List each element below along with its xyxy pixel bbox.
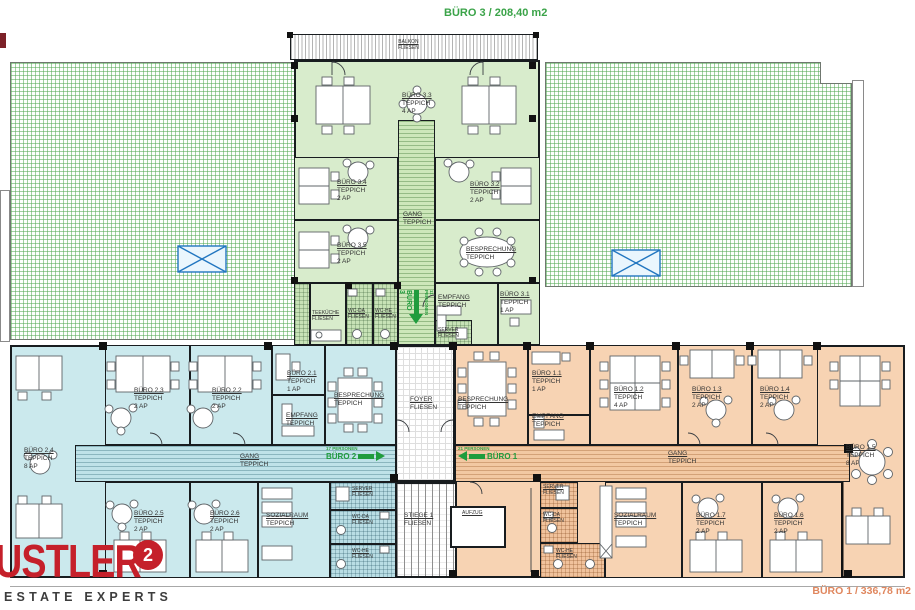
- room-label-buero-1-3: BÜRO 1.3TEPPICH2 AP: [692, 386, 722, 410]
- room-label-besprechung-3: BESPRECHUNGTEPPICH: [466, 246, 516, 262]
- room-label-buero-3-5: BÜRO 3.5TEPPICH2 AP: [337, 242, 367, 266]
- room-label-wc-da-3: WC-DAFLIESEN: [348, 308, 369, 321]
- arrow-left-icon: [458, 451, 467, 461]
- room-label-aufzug: AUFZUG: [462, 510, 483, 516]
- room-label-wc-he-2: WC-HEFLIESEN: [352, 548, 373, 561]
- room-label-buero-2-6: BÜRO 2.6TEPPICH2 AP: [210, 510, 240, 534]
- room-label-buero-2-4: BÜRO 2.4TEPPICH8 AP: [24, 447, 54, 471]
- room-label-besprechung-1: BESPRECHUNGTEPPICH: [458, 396, 508, 412]
- entrance-buero-1-label: BÜRO 1: [487, 452, 517, 461]
- room-label-buero-2-1: BÜRO 2.1TEPPICH1 AP: [287, 370, 317, 394]
- room-label-gang-2: GANGTEPPICH: [240, 453, 268, 469]
- logo-superscript-badge: 2: [133, 540, 163, 570]
- room-label-buero-3-2: BÜRO 3.2TEPPICH2 AP: [470, 181, 500, 205]
- room-label-buero-1-2: BÜRO 1.2TEPPICH4 AP: [614, 386, 644, 410]
- room-label-server-1: SERVERFLIESEN: [543, 484, 564, 497]
- floor-plan: BÜRO 3 / 208,40 m2 BÜRO 1 / 336,78 m2: [0, 0, 915, 610]
- logo-tagline: ESTATE EXPERTS: [4, 590, 172, 604]
- room-label-wc-he-1: WC-HEFLIESEN: [556, 548, 577, 561]
- room-label-gang-1: GANGTEPPICH: [668, 450, 696, 466]
- room-label-empfang-3: EMPFANGTEPPICH: [438, 294, 470, 310]
- room-label-foyer: FOYERFLIESEN: [410, 396, 437, 412]
- room-label-buero-2-3: BÜRO 2.3TEPPICH2 AP: [134, 387, 164, 411]
- arrow-right-icon: [376, 451, 385, 461]
- logo-wordmark: USTLER: [0, 538, 141, 584]
- entrance-buero-2-label: BÜRO 2: [326, 452, 356, 461]
- room-label-buero-1-4: BÜRO 1.4TEPPICH2 AP: [760, 386, 790, 410]
- room-label-empfang-1: EMPFANGTEPPICH: [532, 413, 564, 429]
- unit-1-title: BÜRO 1 / 336,78 m2: [812, 585, 911, 597]
- arrow-bar: [469, 454, 485, 459]
- room-label-buero-1-6: BÜRO 1.6TEPPICH2 AP: [774, 512, 804, 536]
- room-label-wc-da-1: WC-DAFLIESEN: [543, 512, 564, 525]
- room-label-server-2: SERVERFLIESEN: [352, 486, 373, 499]
- room-label-empfang-2: EMPFANGTEPPICH: [286, 412, 318, 428]
- room-label-buero-3-1: BÜRO 3.1TEPPICH1 AP: [500, 291, 530, 315]
- room-label-buero-1-7: BÜRO 1.7TEPPICH2 AP: [696, 512, 726, 536]
- entrance-buero-2: 17 PERSONEN BÜRO 2: [326, 446, 385, 461]
- room-label-buero-1-5: BÜRO 1.5TEPPICH8 AP: [846, 444, 876, 468]
- arrow-down-icon: [409, 314, 423, 324]
- logo: USTLER 2 ESTATE EXPERTS: [0, 538, 220, 610]
- room-label-server-3: SERVERFLIESEN: [438, 327, 459, 340]
- room-label-gang-3: GANGTEPPICH: [403, 211, 431, 227]
- room-label-sozialraum-1: SOZIALRAUMTEPPICH: [614, 512, 656, 528]
- room-label-stiege-1: STIEGE 1FLIESEN: [404, 512, 433, 528]
- entrance-buero-1: 21 PERSONEN BÜRO 1: [458, 446, 517, 461]
- room-label-buero-2-5: BÜRO 2.5TEPPICH2 AP: [134, 510, 164, 534]
- unit-3-title: BÜRO 3 / 208,40 m2: [444, 7, 547, 19]
- room-label-wc-he-3: WC-HEFLIESEN: [375, 308, 396, 321]
- persons-buero-3: 11 PERSONEN: [424, 290, 434, 315]
- room-label-balkon: BALKONFLIESEN: [398, 39, 419, 52]
- arrow-bar: [414, 290, 419, 314]
- room-label-wc-da-2: WC-DAFLIESEN: [352, 514, 373, 527]
- entrance-buero-3-label: BÜRO 3: [398, 290, 412, 311]
- room-label-buero-3-4: BÜRO 3.4TEPPICH2 AP: [337, 179, 367, 203]
- room-label-buero-1-1: BÜRO 1.1TEPPICH1 AP: [532, 370, 562, 394]
- room-label-buero-2-2: BÜRO 2.2TEPPICH2 AP: [212, 387, 242, 411]
- room-label-besprechung-2: BESPRECHUNGTEPPICH: [334, 392, 384, 408]
- room-label-teekueche: TEEKÜCHEFLIESEN: [312, 310, 339, 323]
- arrow-bar: [358, 454, 374, 459]
- room-label-buero-3-3: BÜRO 3.3TEPPICH4 AP: [402, 92, 432, 116]
- room-label-sozialraum-2: SOZIALRAUMTEPPICH: [266, 512, 308, 528]
